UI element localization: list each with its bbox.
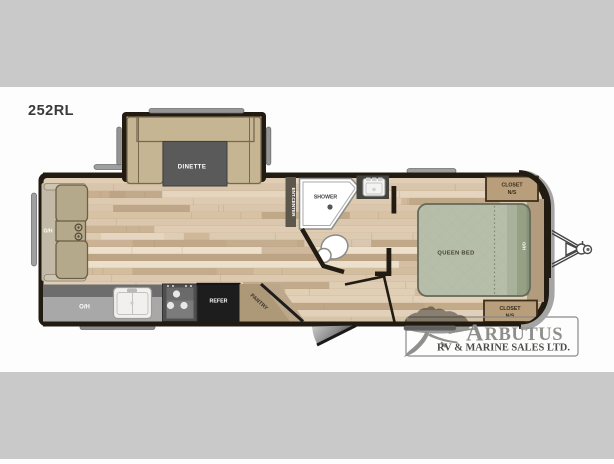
svg-text:N/S: N/S bbox=[508, 190, 517, 196]
svg-text:CLOSET: CLOSET bbox=[501, 183, 523, 189]
svg-text:O/H: O/H bbox=[79, 305, 90, 311]
svg-text:ENT.CENTER: ENT.CENTER bbox=[291, 188, 296, 218]
svg-text:CLOSET: CLOSET bbox=[499, 306, 521, 312]
svg-text:SHOWER: SHOWER bbox=[314, 195, 338, 201]
svg-text:QUEEN BED: QUEEN BED bbox=[437, 251, 474, 257]
svg-text:O/H: O/H bbox=[522, 242, 527, 250]
svg-text:252RL: 252RL bbox=[28, 103, 74, 119]
svg-text:RV & MARINE SALES LTD.: RV & MARINE SALES LTD. bbox=[437, 342, 570, 353]
svg-text:DINETTE: DINETTE bbox=[178, 165, 206, 171]
svg-text:REFER: REFER bbox=[210, 299, 228, 305]
svg-text:O/H: O/H bbox=[44, 228, 53, 234]
